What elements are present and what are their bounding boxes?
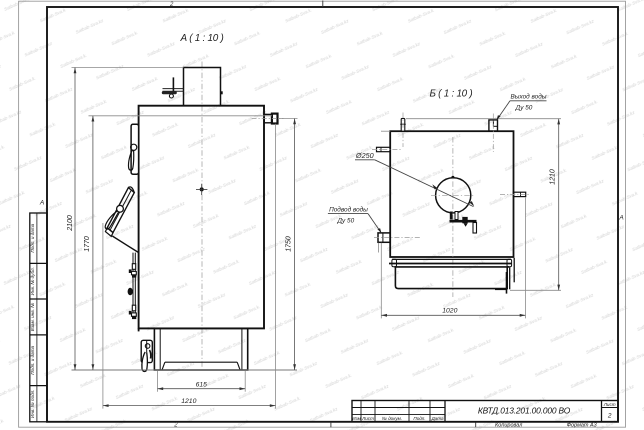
svg-text:Подп. и дата: Подп. и дата	[30, 345, 35, 374]
svg-text:Б ( 1 : 10 ): Б ( 1 : 10 )	[430, 89, 473, 100]
svg-text:Ду 50: Ду 50	[336, 218, 354, 225]
svg-text:Ø250: Ø250	[355, 151, 374, 160]
svg-text:Инв. № подл.: Инв. № подл.	[30, 389, 35, 418]
svg-text:2: 2	[169, 2, 174, 8]
svg-text:№ докум.: № докум.	[382, 416, 402, 421]
svg-text:Ду 50: Ду 50	[515, 105, 533, 112]
svg-text:1750: 1750	[286, 236, 293, 252]
svg-text:А: А	[39, 200, 44, 207]
svg-text:Лист: Лист	[603, 402, 616, 407]
svg-text:А: А	[618, 215, 623, 222]
svg-text:Выход воды: Выход воды	[511, 93, 547, 101]
svg-text:Формат А3: Формат А3	[567, 422, 598, 428]
svg-text:Подвод воды: Подвод воды	[329, 206, 368, 214]
svg-text:КВТД.013.201.00.000 ВО: КВТД.013.201.00.000 ВО	[478, 405, 571, 415]
svg-text:Подп. и дата: Подп. и дата	[30, 223, 35, 252]
svg-text:А ( 1 : 10 ): А ( 1 : 10 )	[179, 33, 223, 44]
svg-text:2100: 2100	[67, 215, 74, 232]
svg-text:Взам. инв. №: Взам. инв. №	[30, 303, 35, 331]
svg-text:Подп.: Подп.	[413, 416, 425, 421]
svg-text:Дата: Дата	[430, 416, 444, 421]
svg-text:1210: 1210	[550, 169, 557, 185]
svg-text:Копировал: Копировал	[495, 422, 522, 428]
svg-text:615: 615	[196, 381, 208, 388]
svg-text:1770: 1770	[84, 236, 91, 252]
svg-text:Лист: Лист	[361, 416, 374, 421]
svg-text:Инв. № дубл.: Инв. № дубл.	[30, 267, 35, 295]
svg-text:1020: 1020	[442, 308, 457, 315]
svg-text:2: 2	[173, 423, 178, 429]
svg-text:2: 2	[607, 413, 612, 420]
svg-text:Изм: Изм	[352, 416, 361, 421]
svg-text:1210: 1210	[181, 398, 196, 405]
